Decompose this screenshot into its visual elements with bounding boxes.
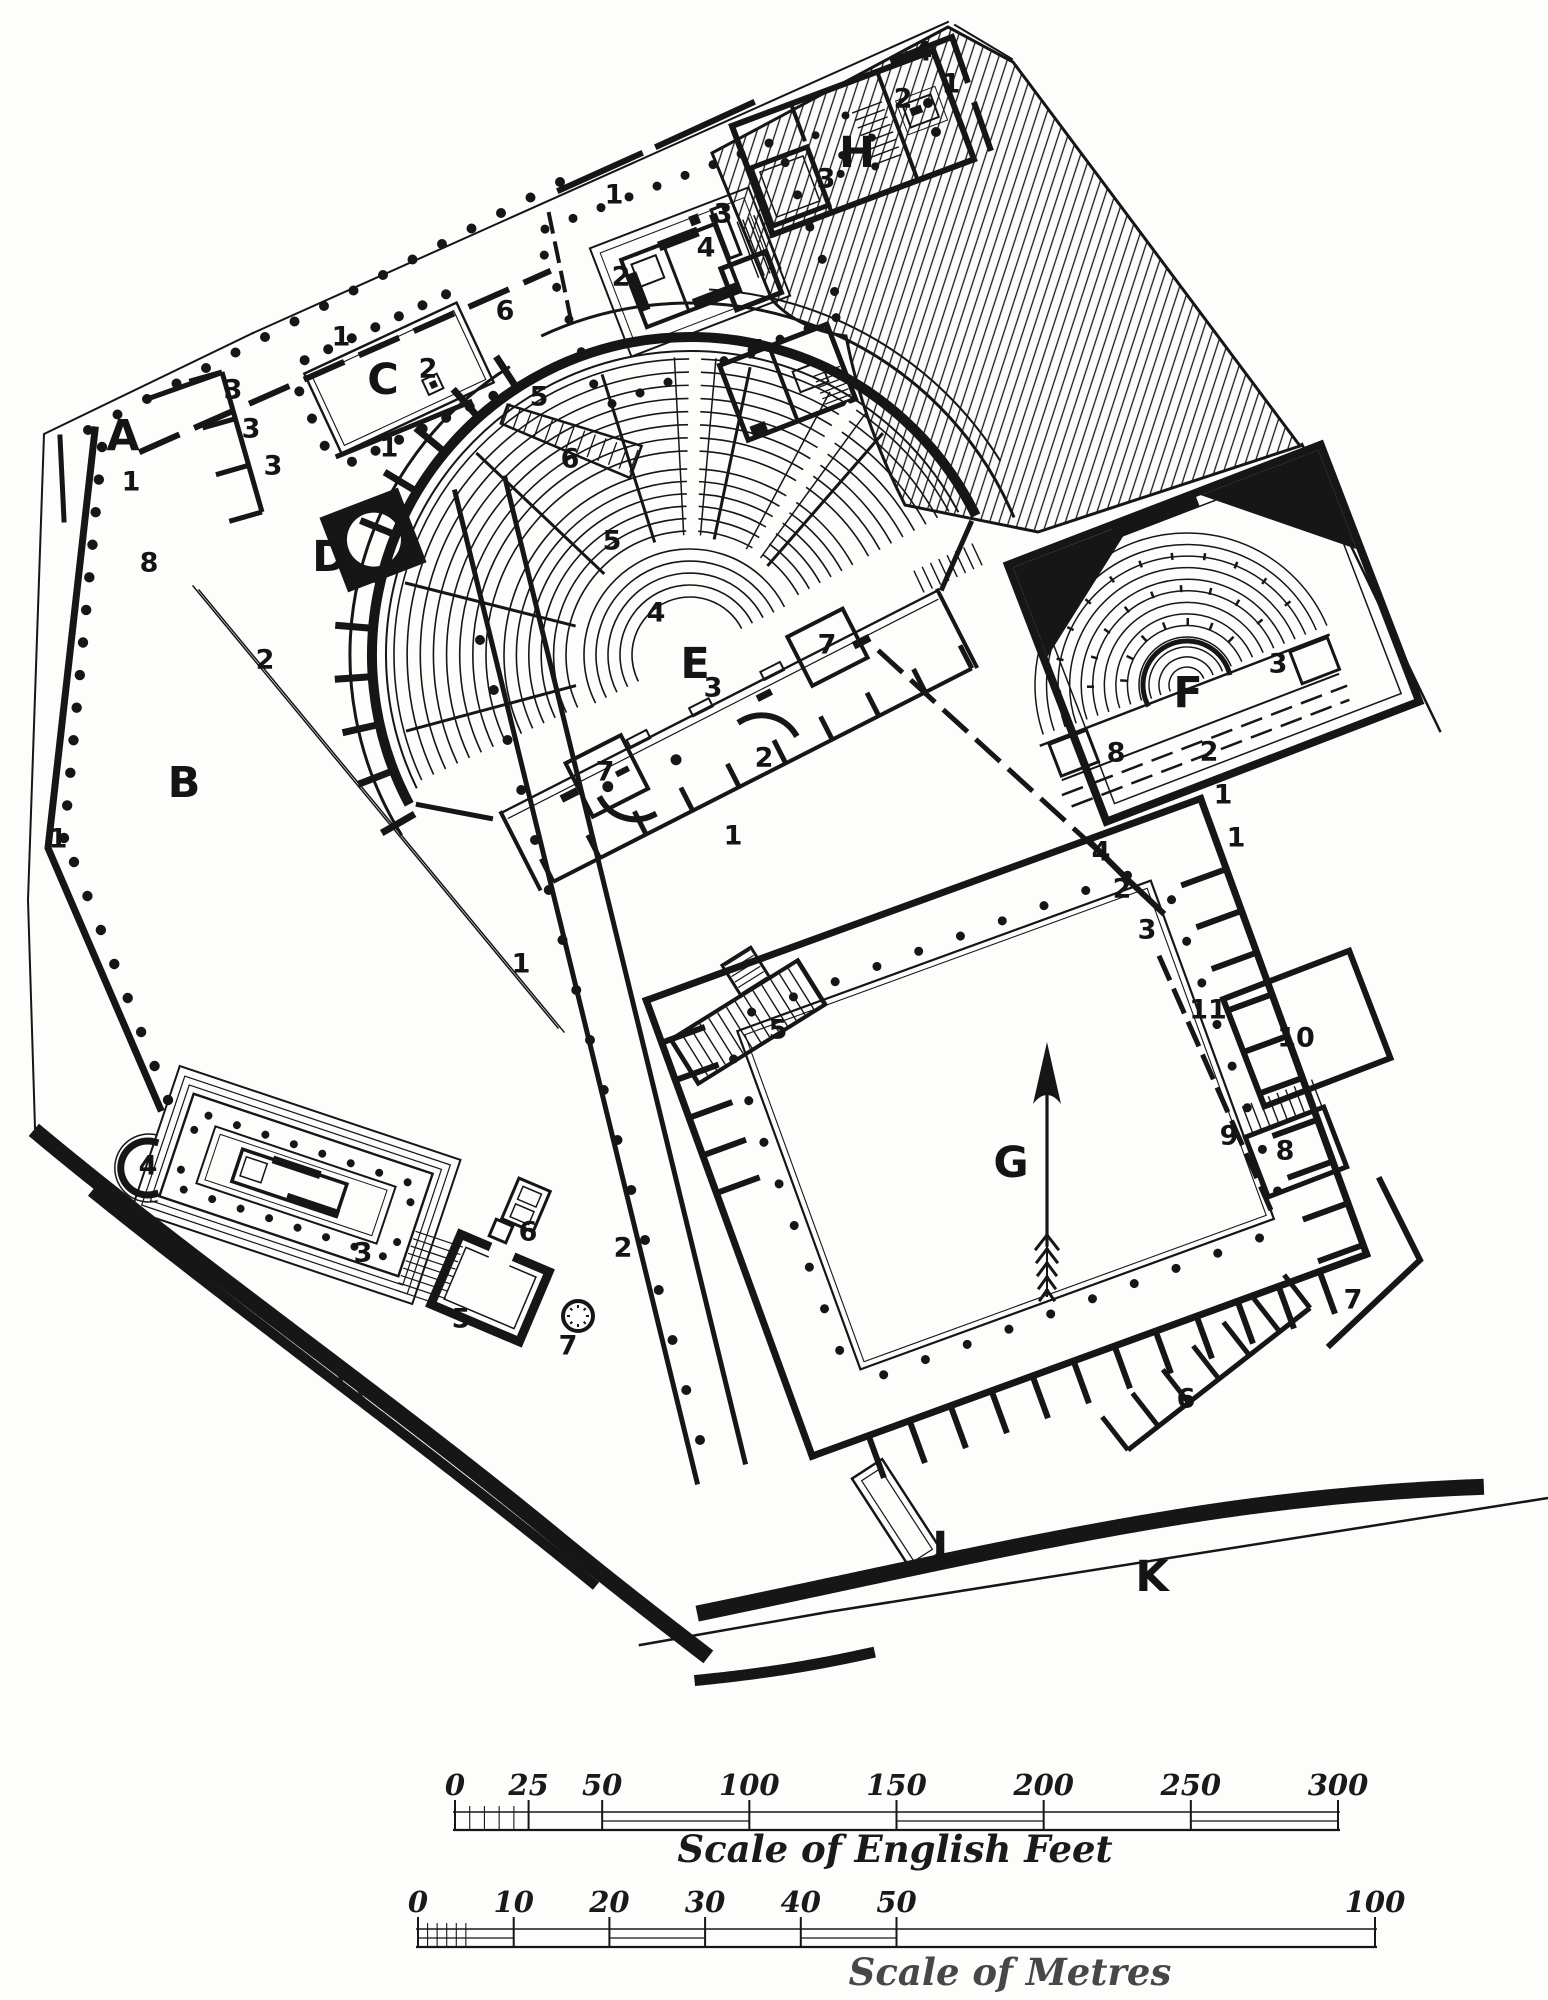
number-2-19: 2 — [256, 645, 275, 676]
number-8-30: 8 — [1107, 738, 1126, 769]
column-dot — [913, 945, 925, 957]
radial-line — [1139, 561, 1142, 568]
staircase-5 — [652, 930, 826, 1084]
column-dot — [305, 412, 318, 425]
column-dot — [955, 930, 967, 942]
well-7 — [563, 1301, 593, 1331]
number-4-46: 4 — [139, 1151, 158, 1182]
column-dot — [293, 385, 306, 398]
radial-line — [1163, 622, 1166, 629]
column-dot — [264, 1213, 274, 1223]
column-dot — [318, 439, 331, 452]
scale-feet: 02550100150200250300 — [445, 1768, 1368, 1830]
column-dot — [203, 1111, 213, 1121]
scale-tick-label-0: 0 — [408, 1885, 428, 1919]
number-4-34: 4 — [1092, 837, 1111, 868]
room-partition — [1212, 953, 1257, 969]
column-dot — [109, 959, 119, 969]
column-dot — [345, 455, 358, 468]
number-10-38: 10 — [1277, 1023, 1315, 1054]
column-dot — [207, 1194, 217, 1204]
number-1-17: 1 — [122, 467, 141, 498]
column-dot — [829, 976, 841, 988]
column-dot — [437, 239, 447, 249]
column-dot — [1003, 1323, 1015, 1335]
column-dot — [679, 170, 691, 182]
scale-tick-label-250: 250 — [1160, 1768, 1222, 1802]
room-partition — [727, 764, 739, 787]
number-6-21: 6 — [561, 444, 580, 475]
number-3-14: 3 — [224, 375, 243, 406]
column-dot — [87, 540, 97, 550]
number-5-43: 5 — [769, 1015, 788, 1046]
column-dot — [65, 768, 75, 778]
scale-tick-label-100: 100 — [719, 1768, 780, 1802]
number-2-35: 2 — [1113, 874, 1132, 905]
radial-line — [584, 1322, 586, 1324]
letter-g-6: G — [993, 1138, 1028, 1188]
radial-line — [1185, 618, 1190, 625]
column-dot — [1038, 900, 1050, 912]
number-2-2: 2 — [894, 84, 913, 115]
number-2-27: 2 — [755, 743, 774, 774]
column-dot — [260, 332, 270, 342]
number-1-13: 1 — [380, 433, 399, 464]
column-dot — [654, 1285, 664, 1295]
number-11-37: 11 — [1189, 995, 1227, 1026]
number-6-42: 6 — [1177, 1384, 1196, 1415]
number-7-50: 7 — [559, 1331, 578, 1362]
column-dot — [1170, 1263, 1182, 1275]
column-dot — [62, 800, 72, 810]
column-dot — [82, 891, 92, 901]
column-dot — [544, 885, 554, 895]
column-dot — [231, 348, 241, 358]
number-7-9: 7 — [745, 335, 764, 366]
number-5-10: 5 — [530, 382, 549, 413]
number-3-47: 3 — [354, 1238, 373, 1269]
column-dot — [260, 1130, 270, 1140]
column-dot — [539, 223, 551, 235]
column-dot — [1226, 1060, 1238, 1072]
radial-line — [1142, 635, 1147, 642]
number-1-1: 1 — [942, 69, 961, 100]
number-2-7: 2 — [612, 262, 631, 293]
room-partition — [820, 716, 832, 739]
room-partition — [1238, 1301, 1253, 1343]
column-dot — [475, 635, 485, 645]
room-partition — [1181, 869, 1226, 885]
scale-metres-caption: Scale of Metres — [849, 1950, 1172, 1994]
column-dot — [69, 857, 79, 867]
number-1-33: 1 — [1227, 823, 1246, 854]
north-arrow — [1033, 1042, 1061, 1300]
column-dot — [378, 270, 388, 280]
column-dot — [84, 572, 94, 582]
number-3-3: 3 — [817, 164, 836, 195]
column-dot — [292, 1223, 302, 1233]
number-1-32: 1 — [1214, 780, 1233, 811]
column-dot — [405, 1197, 415, 1207]
number-4-0: 4 — [914, 37, 933, 68]
column-dot — [83, 425, 93, 435]
column-dot — [804, 1261, 816, 1273]
radial-line — [1208, 623, 1214, 629]
portico-c — [150, 287, 501, 521]
column-dot — [613, 1135, 623, 1145]
room-partition — [1196, 911, 1241, 927]
city-wall-west — [48, 430, 173, 1108]
column-dot — [538, 249, 550, 261]
column-dot — [681, 1385, 691, 1395]
room-partition — [716, 1177, 759, 1193]
stairs-east-of-e — [914, 544, 982, 593]
column-dot — [695, 1435, 705, 1445]
letter-l-9: L — [932, 1523, 959, 1573]
column-dot — [496, 208, 506, 218]
column-dot — [1254, 1232, 1266, 1244]
scale-tick-label-300: 300 — [1308, 1768, 1369, 1802]
scale-feet-caption: Scale of English Feet — [677, 1827, 1112, 1871]
column-dot — [1196, 977, 1208, 989]
column-dot — [526, 193, 536, 203]
number-3-15: 3 — [242, 414, 261, 445]
number-5-49: 5 — [452, 1304, 471, 1335]
column-dot — [416, 299, 429, 312]
number-9-39: 9 — [1220, 1121, 1239, 1152]
column-dot — [834, 1345, 846, 1357]
number-3-29: 3 — [1269, 649, 1288, 680]
column-dot — [290, 317, 300, 327]
letter-h-7: H — [839, 128, 875, 178]
scale-tick-label-0: 0 — [445, 1768, 465, 1802]
number-3-16: 3 — [264, 451, 283, 482]
column-dot — [90, 507, 100, 517]
letter-d-3: D — [312, 532, 348, 582]
column-dot — [516, 785, 526, 795]
column-dot — [298, 354, 311, 367]
radial-line — [1127, 654, 1133, 660]
column-dot — [1128, 1278, 1140, 1290]
room-partition — [689, 1102, 732, 1118]
number-8-18: 8 — [140, 548, 159, 579]
column-dot — [651, 180, 663, 192]
column-dot — [349, 286, 359, 296]
radial-line — [1120, 678, 1127, 683]
column-dot — [1181, 936, 1193, 948]
column-dot — [201, 363, 211, 373]
room-partition — [910, 1421, 925, 1463]
plan-numbers: 4123134267512133318216543772138211423111… — [49, 37, 1363, 1415]
scale-tick-label-30: 30 — [685, 1885, 725, 1919]
column-dot — [640, 1235, 650, 1245]
scale-tick-label-10: 10 — [494, 1885, 534, 1919]
column-dot — [232, 1120, 242, 1130]
column-dot — [558, 935, 568, 945]
column-dot — [75, 670, 85, 680]
column-dot — [408, 255, 418, 265]
scale-tick-label-50: 50 — [876, 1885, 916, 1919]
column-dot — [1166, 894, 1178, 906]
radial-line — [1228, 637, 1235, 642]
column-dot — [599, 1085, 609, 1095]
seating-arc — [327, 292, 926, 769]
column-dot — [773, 1178, 785, 1190]
letter-c-2: C — [367, 355, 399, 405]
doric-temple-precinct-b — [132, 1066, 489, 1314]
radial-line — [1234, 600, 1241, 606]
column-dot — [567, 213, 579, 225]
column-dot — [378, 1251, 388, 1261]
room-partition — [681, 788, 693, 811]
radial-line — [335, 663, 373, 692]
column-dot — [321, 1232, 331, 1242]
scale-tick-label-20: 20 — [588, 1885, 629, 1919]
column-dot — [996, 915, 1008, 927]
number-6-8: 6 — [496, 296, 515, 327]
scale-tick-label-50: 50 — [582, 1768, 622, 1802]
column-dot — [920, 1354, 932, 1366]
column-dot — [743, 1095, 755, 1107]
column-dot — [123, 993, 133, 1003]
radial-line — [584, 1308, 586, 1310]
column-dot — [374, 1168, 384, 1178]
plan-sheet: ABCDEFGHKL 41231342675121333182165437721… — [0, 0, 1548, 2000]
column-dot — [369, 321, 382, 334]
scale-metres: 01020304050100 — [408, 1885, 1405, 1947]
letter-b-1: B — [168, 758, 201, 808]
column-dot — [236, 1204, 246, 1214]
number-1-4: 1 — [605, 180, 624, 211]
room-partition — [774, 740, 786, 763]
column-dot — [871, 961, 883, 973]
seating-arc — [547, 512, 784, 703]
column-dot — [392, 1237, 402, 1247]
column-dot — [317, 1149, 327, 1159]
room-partition — [216, 465, 249, 474]
column-dot — [623, 191, 635, 203]
radial-line — [570, 1322, 572, 1324]
column-dot — [392, 310, 405, 323]
room-partition — [1102, 1417, 1128, 1450]
number-3-5: 3 — [714, 199, 733, 230]
room-partition — [703, 1140, 746, 1156]
column-dot — [96, 925, 106, 935]
column-dot — [78, 637, 88, 647]
radial-line — [1104, 628, 1110, 635]
column-dot — [489, 685, 499, 695]
scale-tick-label-40: 40 — [781, 1885, 821, 1919]
room-partition — [951, 1406, 966, 1448]
site-plan-drawing: ABCDEFGHKL 41231342675121333182165437721… — [0, 0, 1548, 2000]
seating-arc — [596, 561, 753, 687]
number-3-24: 3 — [704, 673, 723, 704]
number-1-11: 1 — [332, 322, 351, 353]
column-dot — [1080, 885, 1092, 897]
number-4-6: 4 — [697, 233, 716, 264]
column-dot — [626, 1185, 636, 1195]
room-partition — [1132, 1393, 1158, 1426]
seating-arc — [564, 529, 774, 698]
room-partition — [867, 693, 879, 716]
scale-tick-label-200: 200 — [1012, 1768, 1074, 1802]
column-dot — [503, 735, 513, 745]
number-6-48: 6 — [519, 1217, 538, 1248]
column-dot — [94, 474, 104, 484]
number-2-12: 2 — [419, 354, 438, 385]
column-dot — [403, 1177, 413, 1187]
gate-l — [852, 1459, 942, 1571]
column-dot — [346, 1158, 356, 1168]
column-dot — [961, 1339, 973, 1351]
room-partition — [1254, 1299, 1280, 1332]
column-dot — [788, 1220, 800, 1232]
number-1-28: 1 — [724, 821, 743, 852]
column-dot — [571, 985, 581, 995]
column-dot — [585, 1035, 595, 1045]
column-dot — [551, 281, 563, 293]
column-dot — [758, 1137, 770, 1149]
radial-line — [570, 1308, 572, 1310]
room-partition — [1074, 1361, 1089, 1403]
radial-line — [632, 358, 785, 535]
number-7-26: 7 — [596, 757, 615, 788]
number-7-25: 7 — [818, 630, 837, 661]
number-2-31: 2 — [1200, 737, 1219, 768]
room-partition — [229, 512, 262, 521]
room-partition — [634, 811, 646, 834]
number-4-23: 4 — [647, 598, 666, 629]
number-3-36: 3 — [1138, 915, 1157, 946]
column-dot — [81, 605, 91, 615]
number-5-22: 5 — [603, 526, 622, 557]
column-dot — [1257, 1144, 1269, 1156]
column-dot — [1087, 1293, 1099, 1305]
room-partition — [1303, 1203, 1348, 1219]
column-dot — [176, 1165, 186, 1175]
column-dot — [819, 1303, 831, 1315]
column-dot — [289, 1139, 299, 1149]
letter-k-8: K — [1135, 1552, 1170, 1602]
room-partition — [1320, 1271, 1335, 1313]
scale-tick-label-150: 150 — [866, 1768, 927, 1802]
number-1-44: 1 — [512, 949, 531, 980]
column-dot — [1212, 1247, 1224, 1259]
column-dot — [179, 1185, 189, 1195]
column-dot — [189, 1125, 199, 1135]
number-2-45: 2 — [614, 1233, 633, 1264]
room-partition — [992, 1391, 1007, 1433]
radial-line — [476, 426, 604, 601]
room-partition — [1033, 1376, 1048, 1418]
column-dot — [668, 1335, 678, 1345]
column-dot — [149, 1061, 159, 1071]
column-dot — [319, 301, 329, 311]
road-k — [640, 1498, 1548, 1645]
column-dot — [68, 735, 78, 745]
column-dot — [467, 224, 477, 234]
column-dot — [136, 1027, 146, 1037]
scale-tick-label-100: 100 — [1345, 1885, 1406, 1919]
column-dot — [878, 1369, 890, 1381]
number-7-41: 7 — [1344, 1285, 1363, 1316]
column-dot — [71, 702, 81, 712]
letter-a-0: A — [106, 411, 140, 461]
column-dot — [530, 835, 540, 845]
column-dot — [439, 288, 452, 301]
room-partition — [1156, 1331, 1171, 1373]
number-1-20: 1 — [49, 824, 68, 855]
number-8-40: 8 — [1276, 1136, 1295, 1167]
seating-arc — [473, 438, 831, 723]
letter-f-5: F — [1173, 668, 1202, 718]
room-partition — [1115, 1346, 1130, 1388]
scale-tick-label-25: 25 — [507, 1768, 548, 1802]
column-dot — [1045, 1308, 1057, 1320]
